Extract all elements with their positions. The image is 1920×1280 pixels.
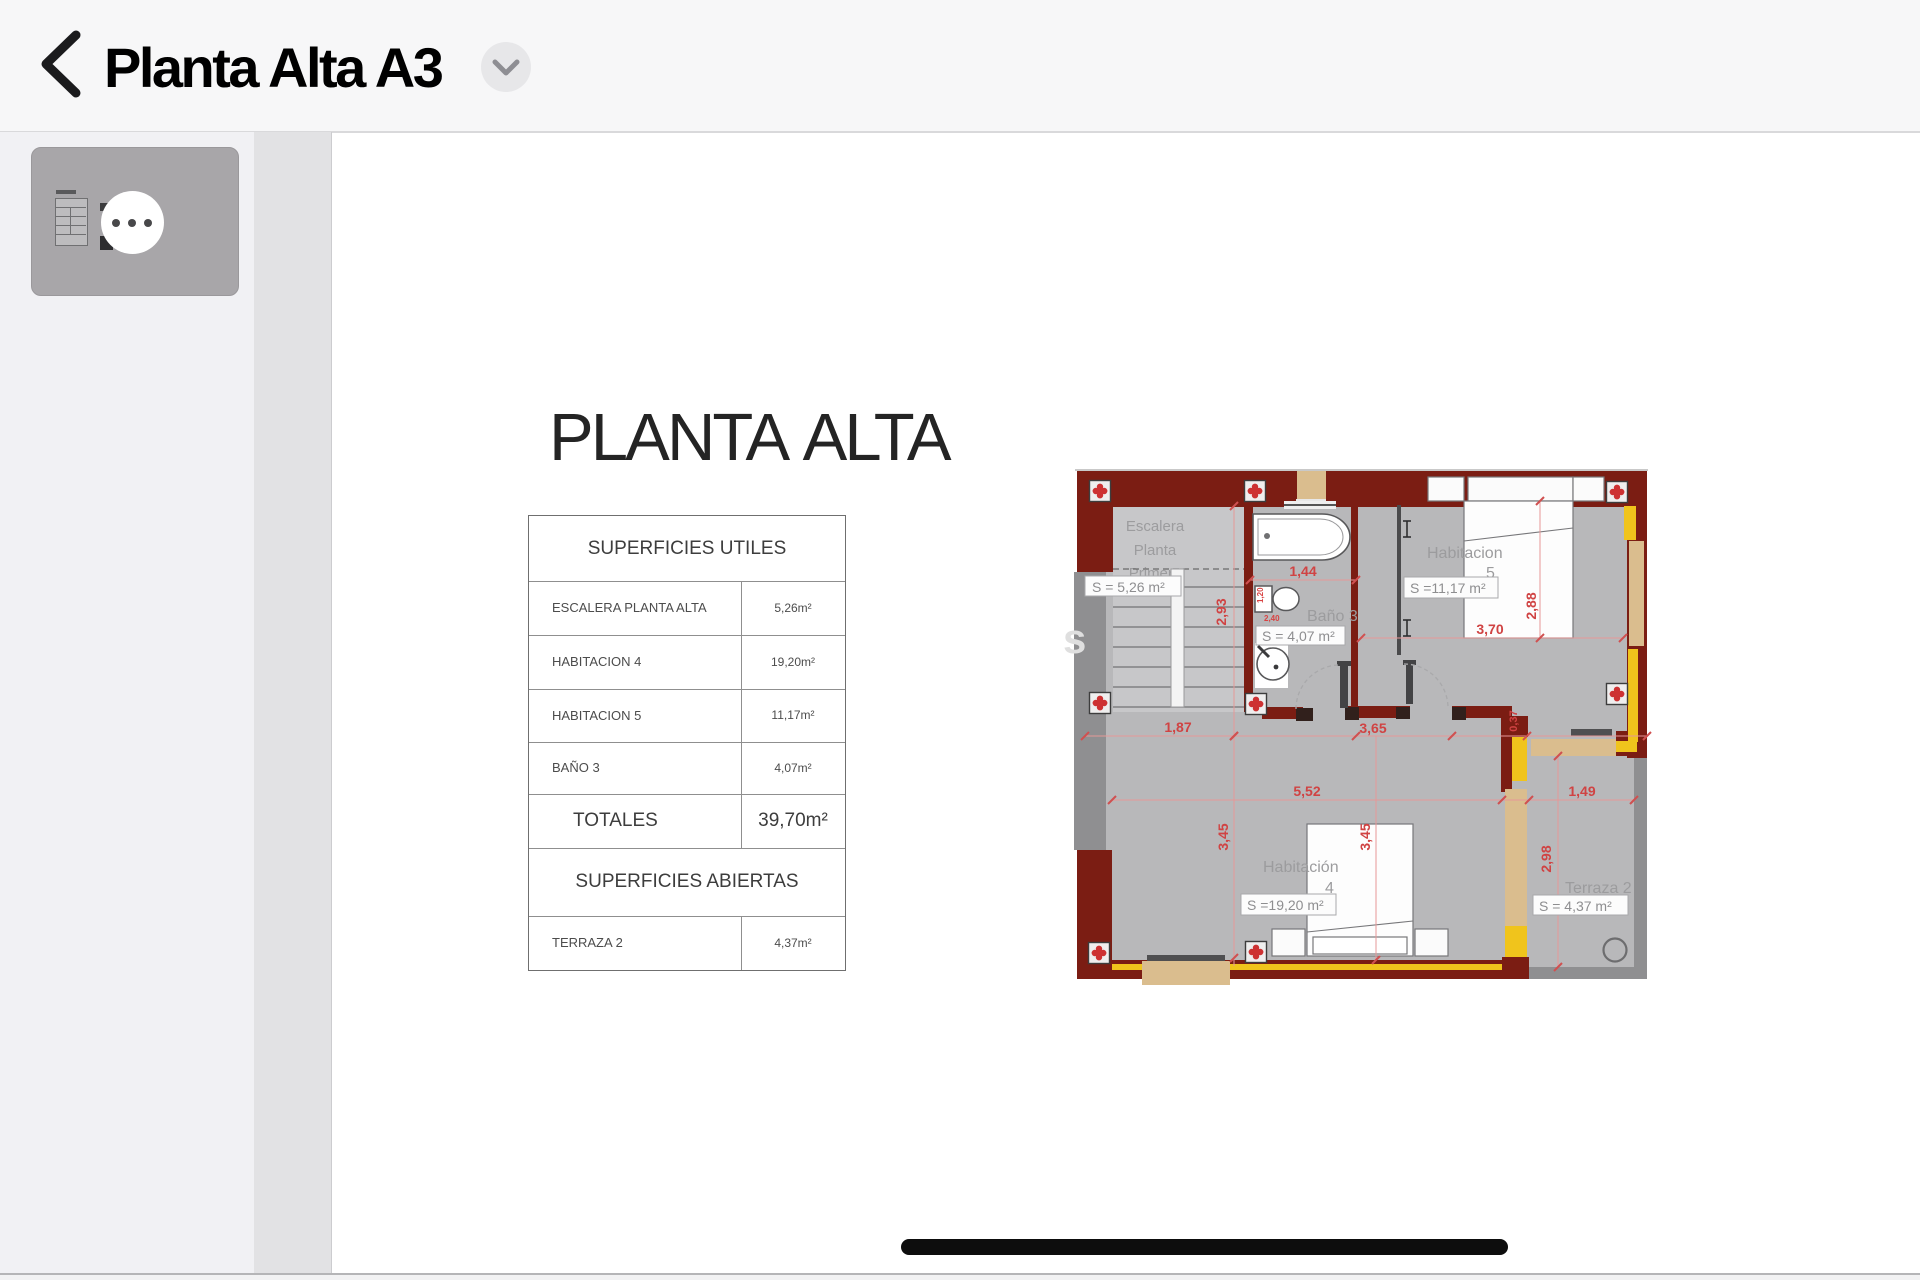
svg-text:S = 4,07 m²: S = 4,07 m² [1262,628,1335,644]
svg-text:2,98: 2,98 [1538,845,1554,872]
svg-text:Escalera: Escalera [1126,518,1185,535]
svg-text:1,20: 1,20 [1256,587,1265,603]
svg-text:S =19,20 m²: S =19,20 m² [1247,897,1324,913]
svg-text:2,88: 2,88 [1523,592,1539,619]
svg-text:Habitación: Habitación [1263,859,1339,876]
svg-text:0,37: 0,37 [1508,710,1520,731]
svg-text:Habitacion: Habitacion [1427,545,1503,562]
svg-text:Baño 3: Baño 3 [1307,608,1358,625]
svg-text:Planta: Planta [1134,542,1177,559]
svg-text:s: s [1063,615,1086,662]
svg-text:S = 5,26 m²: S = 5,26 m² [1092,579,1165,595]
svg-text:Terraza 2: Terraza 2 [1565,880,1632,897]
svg-text:3,65: 3,65 [1359,720,1386,736]
svg-text:S =11,17 m²: S =11,17 m² [1410,580,1486,596]
svg-text:2,93: 2,93 [1213,598,1229,625]
svg-text:1,87: 1,87 [1164,719,1191,735]
svg-text:S = 4,37 m²: S = 4,37 m² [1539,898,1612,914]
svg-text:2,40: 2,40 [1264,614,1280,623]
svg-text:1,44: 1,44 [1289,563,1316,579]
svg-text:3,45: 3,45 [1215,823,1231,850]
svg-text:5,52: 5,52 [1293,783,1320,799]
svg-text:3,70: 3,70 [1476,621,1503,637]
svg-text:3,45: 3,45 [1357,823,1373,850]
svg-text:1,49: 1,49 [1568,783,1595,799]
